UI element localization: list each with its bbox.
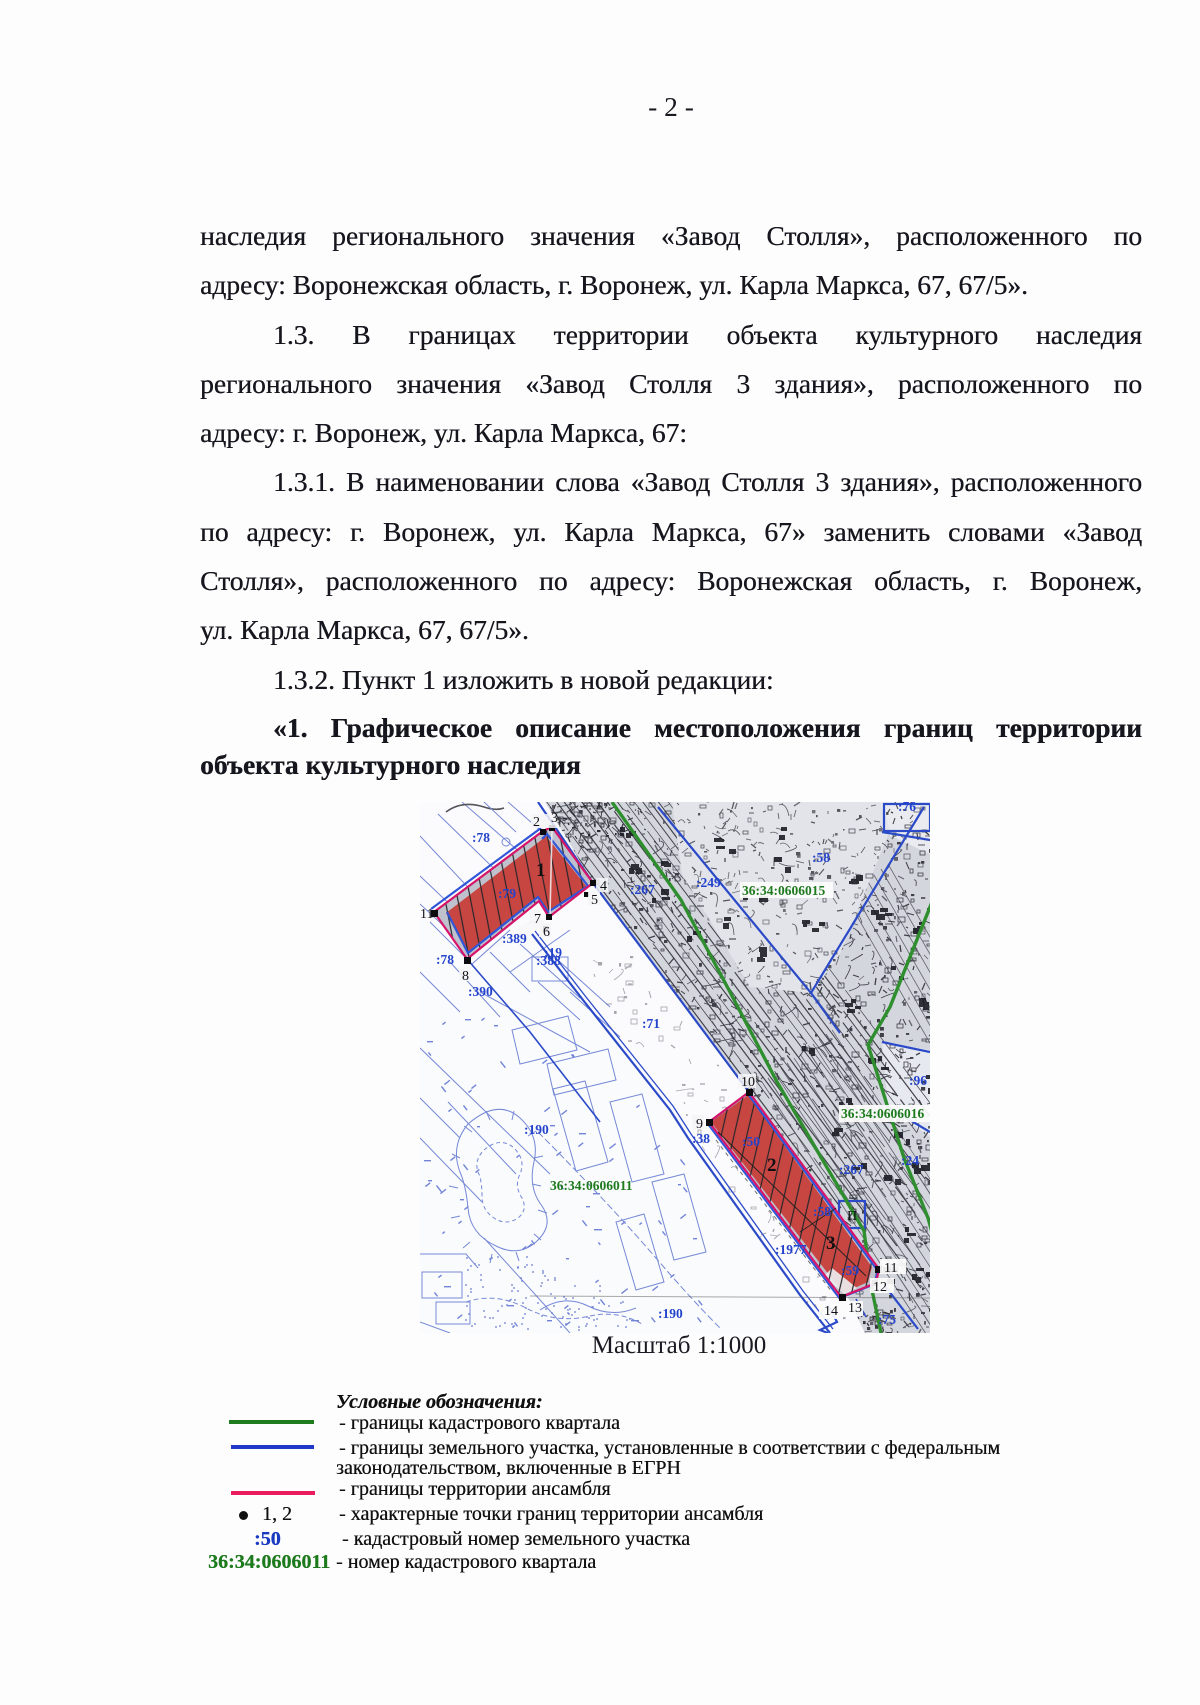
svg-text::58: :58 — [813, 1204, 831, 1219]
svg-text::190: :190 — [524, 1122, 549, 1137]
svg-text::50: :50 — [742, 1134, 760, 1149]
svg-text:3: 3 — [826, 1233, 836, 1254]
svg-text:8: 8 — [462, 969, 469, 984]
svg-text::267: :267 — [630, 882, 655, 897]
svg-text::249: :249 — [696, 875, 721, 890]
svg-text::76: :76 — [898, 802, 916, 814]
svg-text:11: 11 — [420, 907, 433, 922]
svg-text::19: :19 — [544, 945, 562, 960]
svg-text::71: :71 — [642, 1016, 660, 1031]
svg-text:9: 9 — [696, 1117, 703, 1132]
svg-text:5: 5 — [591, 893, 598, 908]
svg-text:36:34:0606011: 36:34:0606011 — [550, 1178, 633, 1193]
svg-text::389: :389 — [502, 931, 527, 946]
svg-text:13: 13 — [848, 1301, 862, 1316]
svg-text:2: 2 — [533, 815, 540, 830]
svg-text::78: :78 — [472, 830, 490, 845]
svg-text:4: 4 — [600, 879, 607, 894]
svg-text::38: :38 — [692, 1131, 710, 1146]
svg-text::24: :24 — [901, 1153, 919, 1168]
svg-text:6: 6 — [543, 925, 550, 940]
svg-text:7: 7 — [534, 912, 541, 927]
svg-text:11: 11 — [884, 1261, 897, 1276]
svg-text:12: 12 — [873, 1280, 887, 1295]
svg-text:36:34:0606015: 36:34:0606015 — [742, 883, 825, 898]
svg-text::190: :190 — [658, 1306, 683, 1321]
svg-text::79: :79 — [498, 886, 516, 901]
svg-text:2: 2 — [767, 1155, 777, 1176]
svg-text::78: :78 — [436, 952, 454, 967]
svg-text:1: 1 — [536, 860, 546, 881]
svg-text::267: :267 — [839, 1162, 864, 1177]
svg-text:10: 10 — [741, 1075, 755, 1090]
svg-text::390: :390 — [468, 984, 493, 999]
svg-text:36:34:0606016: 36:34:0606016 — [841, 1106, 924, 1121]
svg-text:14: 14 — [824, 1304, 838, 1319]
svg-text:П: П — [847, 1209, 857, 1224]
svg-text::59: :59 — [841, 1263, 859, 1278]
svg-text::58: :58 — [812, 850, 830, 865]
svg-text:3: 3 — [551, 811, 558, 826]
svg-text::1977: :1977 — [775, 1242, 807, 1257]
svg-text::75: :75 — [878, 1312, 896, 1327]
svg-text::96: :96 — [909, 1073, 927, 1088]
